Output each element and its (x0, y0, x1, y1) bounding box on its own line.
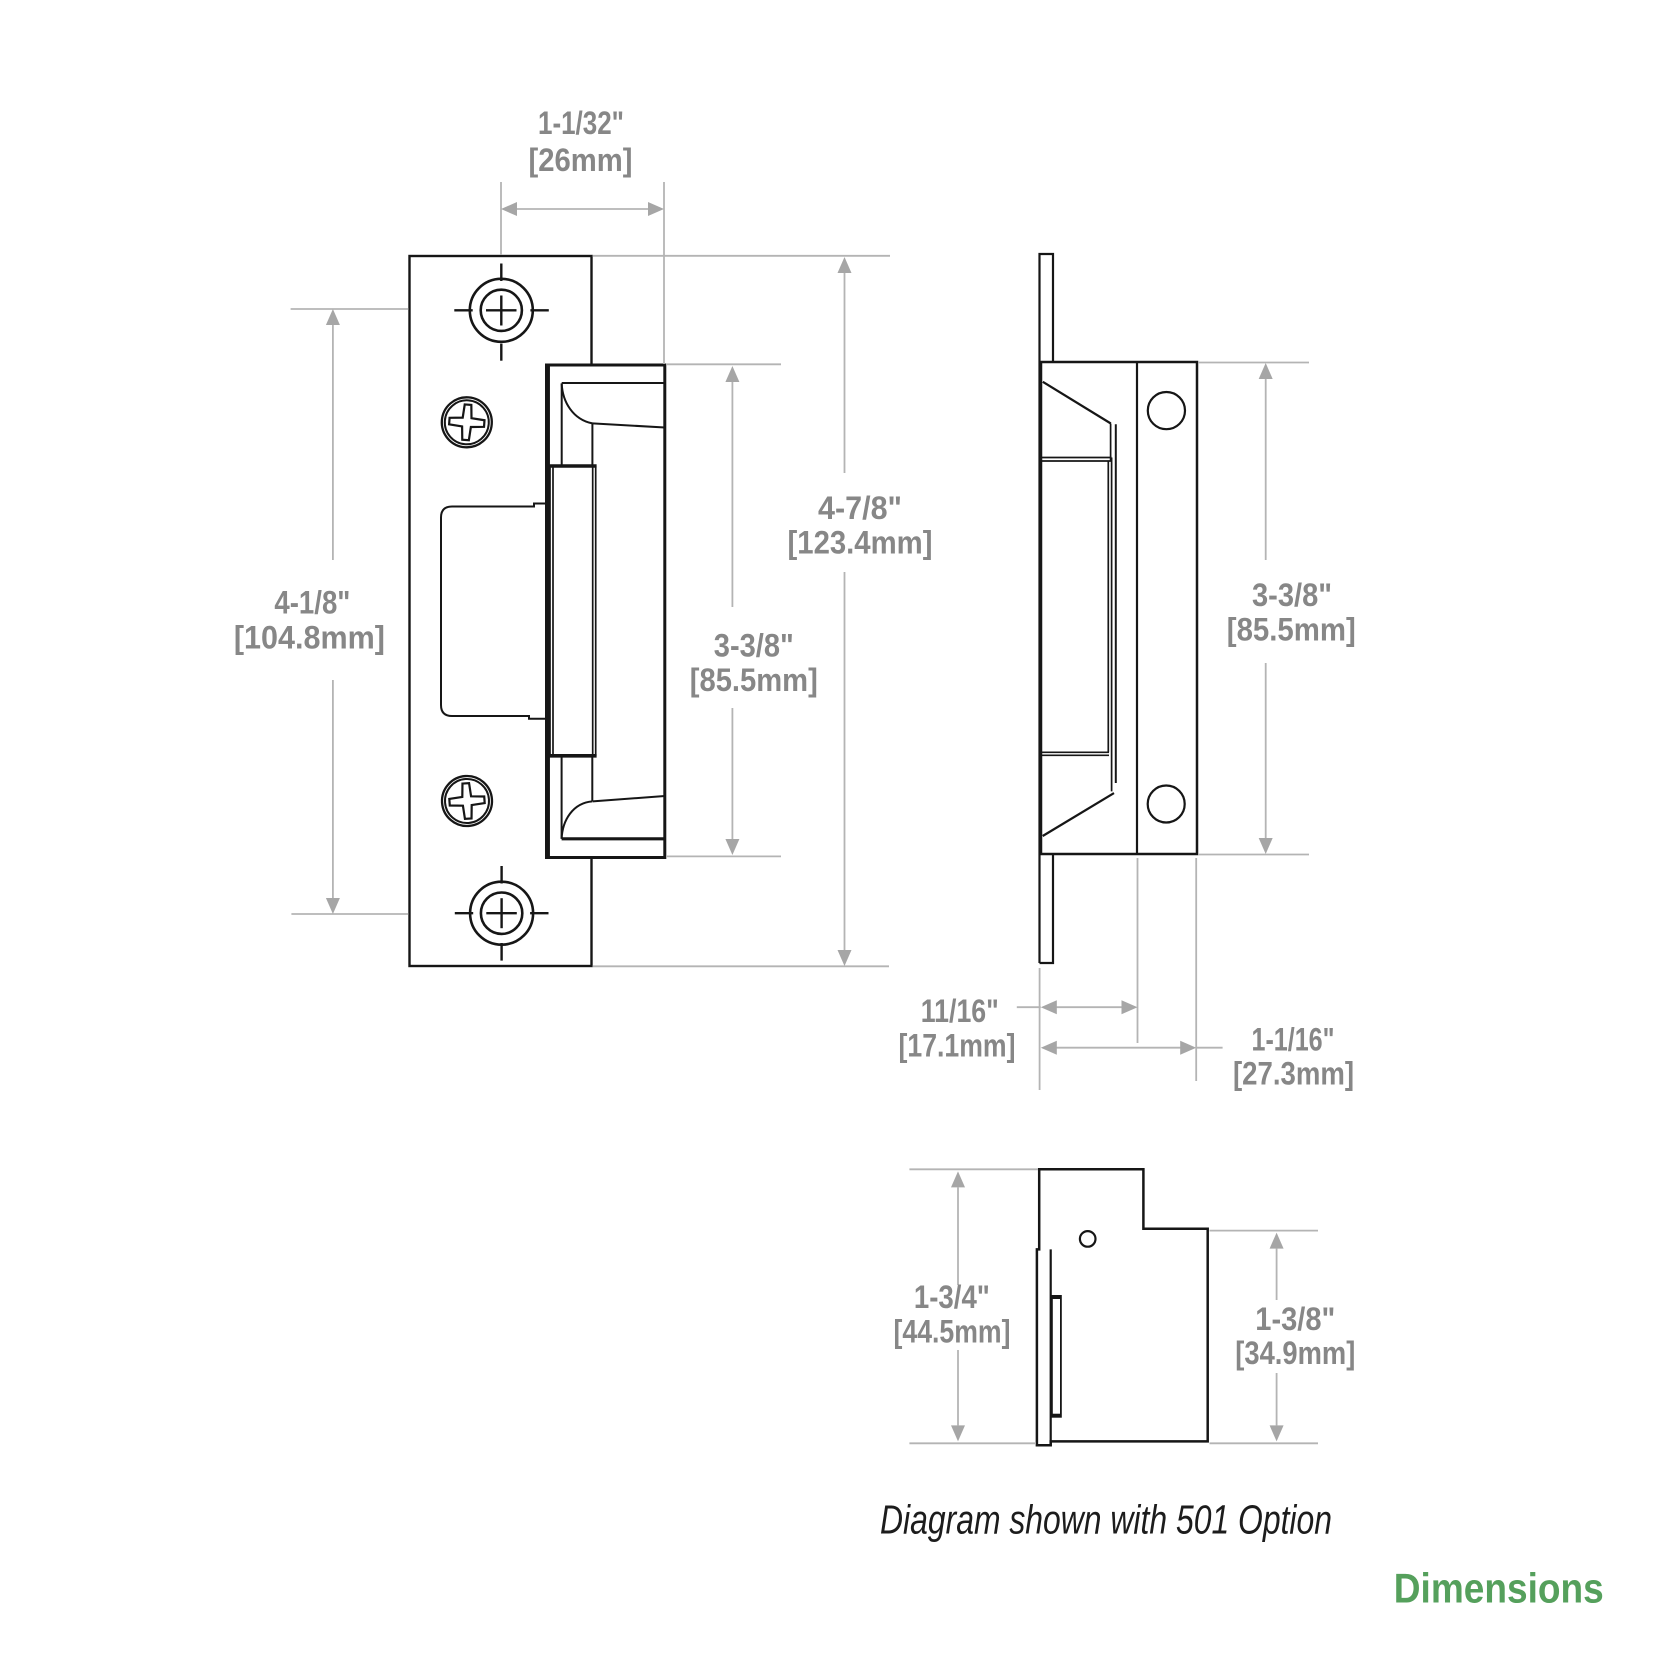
svg-text:4-1/8": 4-1/8" (274, 585, 350, 621)
svg-text:[44.5mm]: [44.5mm] (894, 1313, 1011, 1349)
svg-text:Dimensions: Dimensions (1394, 1565, 1604, 1612)
svg-text:[34.9mm]: [34.9mm] (1235, 1335, 1355, 1371)
svg-text:[123.4mm]: [123.4mm] (788, 525, 933, 561)
svg-text:Diagram shown with 501 Option: Diagram shown with 501 Option (880, 1497, 1332, 1543)
svg-text:[104.8mm]: [104.8mm] (234, 620, 385, 656)
svg-text:3-3/8": 3-3/8" (714, 628, 794, 664)
svg-text:1-1/16": 1-1/16" (1252, 1022, 1335, 1058)
svg-text:11/16": 11/16" (921, 993, 999, 1029)
svg-text:1-3/8": 1-3/8" (1255, 1301, 1335, 1337)
svg-text:1-3/4": 1-3/4" (914, 1279, 990, 1315)
svg-text:[26mm]: [26mm] (529, 142, 633, 178)
svg-text:1-1/32": 1-1/32" (538, 105, 624, 141)
svg-text:[85.5mm]: [85.5mm] (1227, 612, 1356, 648)
svg-text:[17.1mm]: [17.1mm] (899, 1028, 1016, 1064)
svg-text:[27.3mm]: [27.3mm] (1233, 1056, 1354, 1092)
svg-text:4-7/8": 4-7/8" (818, 490, 902, 526)
svg-text:[85.5mm]: [85.5mm] (690, 662, 818, 698)
svg-text:3-3/8": 3-3/8" (1252, 577, 1332, 613)
